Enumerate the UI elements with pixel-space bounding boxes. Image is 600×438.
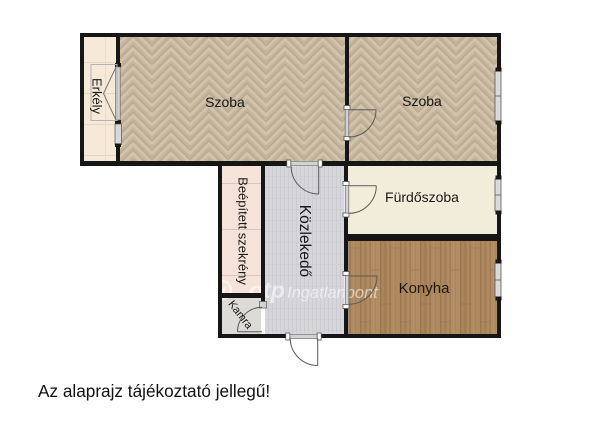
svg-text:Szoba: Szoba [205, 94, 245, 110]
svg-text:Konyha: Konyha [399, 280, 451, 297]
svg-text:otp: otp [249, 277, 285, 303]
svg-text:Közlekedő: Közlekedő [296, 205, 313, 277]
svg-text:Erkély: Erkély [90, 78, 105, 115]
svg-text:Szoba: Szoba [402, 93, 442, 109]
svg-text:Beépített szekrény: Beépített szekrény [236, 177, 251, 285]
svg-text:Az alaprajz tájékoztató jelleg: Az alaprajz tájékoztató jellegű! [38, 381, 270, 401]
svg-text:Fürdőszoba: Fürdőszoba [385, 189, 459, 205]
